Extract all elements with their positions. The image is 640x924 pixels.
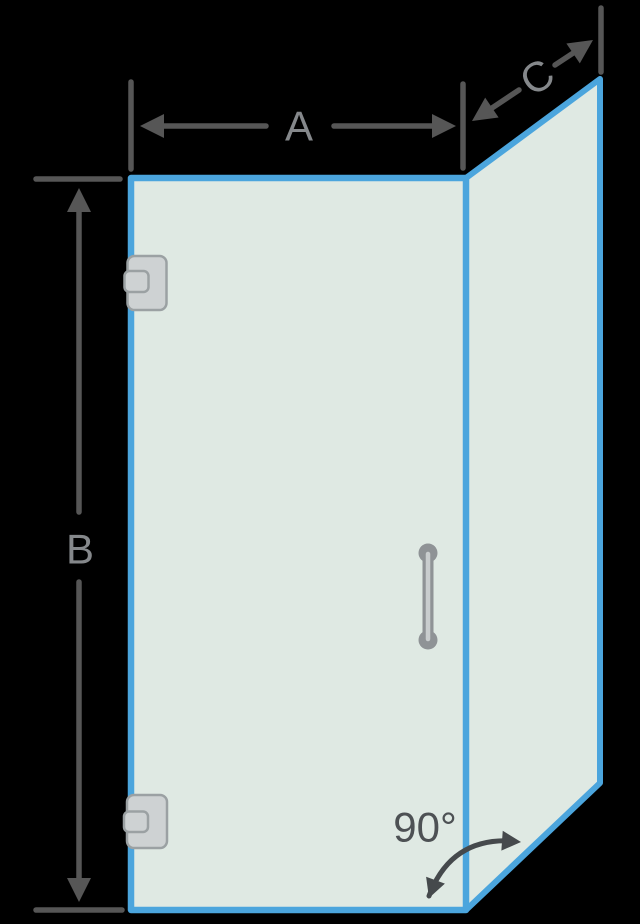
dim-c-arrow-lower-icon	[465, 98, 498, 131]
door-panel	[131, 178, 466, 910]
dim-c-label: C	[511, 49, 562, 105]
diagram-canvas: A B C 90°	[0, 0, 640, 924]
dim-a-arrow-left-icon	[140, 114, 164, 138]
dim-a-label: A	[285, 103, 313, 150]
dimension-a: A	[131, 82, 463, 169]
door-glass	[131, 178, 466, 910]
angle-label: 90°	[393, 804, 457, 851]
dim-b-arrow-up-icon	[67, 188, 91, 212]
dim-b-label: B	[66, 526, 94, 573]
hinge-bottom-clamp	[124, 812, 148, 833]
hinge-top	[125, 256, 167, 310]
hinge-bottom	[124, 795, 167, 848]
return-panel-glass	[466, 79, 600, 910]
dim-a-arrow-right-icon	[432, 114, 456, 138]
dim-c-shaft-upper	[555, 53, 574, 66]
shower-door-diagram: A B C 90°	[0, 0, 640, 924]
dimension-b: B	[36, 179, 122, 910]
dim-c-shaft-lower	[486, 90, 519, 112]
hinge-top-clamp	[125, 271, 149, 292]
dim-c-arrow-upper-icon	[566, 30, 599, 63]
return-panel	[466, 79, 600, 910]
dim-b-arrow-down-icon	[67, 878, 91, 902]
